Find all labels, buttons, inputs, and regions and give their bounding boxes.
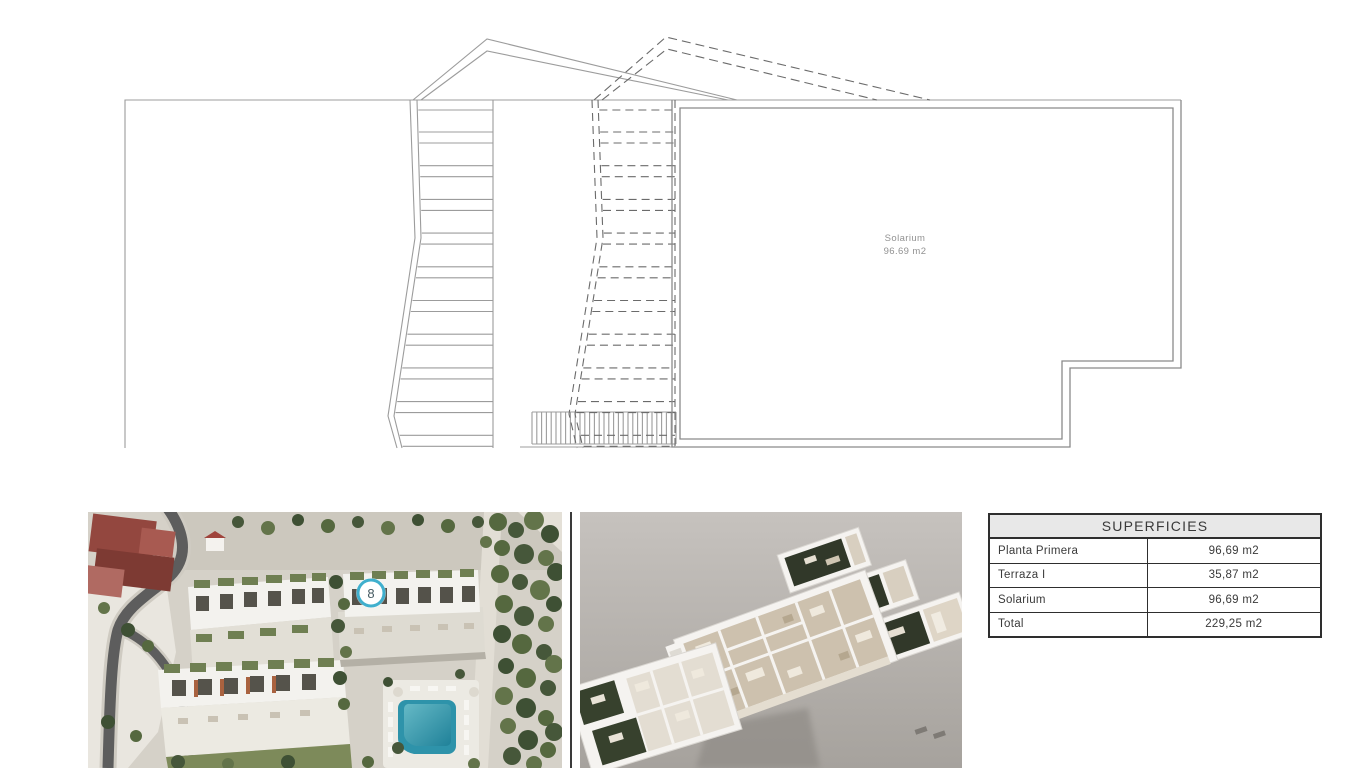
pool-area [383,680,479,768]
roof-outline [413,39,737,100]
plan-sheet-page: Solarium 96.69 m2 [0,0,1366,768]
row-value: 96,69 m2 [1148,588,1321,612]
aerial-photo: 8 [88,512,562,768]
terrace-steps-solid [388,100,493,448]
dashed-roof-outline [594,37,930,100]
stairs-grid [532,412,676,444]
table-row: Solarium 96,69 m2 [990,588,1320,613]
terrace-steps-dashed [569,100,675,448]
table-row: Planta Primera 96,69 m2 [990,539,1320,564]
image-divider [570,512,572,768]
row-value: 96,69 m2 [1148,539,1321,563]
unit-badge: 8 [356,578,386,608]
floorplan-3d-render [580,512,962,768]
floor-plan-drawing: Solarium 96.69 m2 [0,0,1366,470]
plot-boundary [125,100,1181,448]
table-row: Terraza I 35,87 m2 [990,564,1320,589]
row-value: 35,87 m2 [1148,564,1321,588]
solarium-label: Solarium [885,233,926,244]
row-label: Total [990,613,1148,637]
row-label: Planta Primera [990,539,1148,563]
row-label: Solarium [990,588,1148,612]
unit-badge-number: 8 [367,586,374,601]
building-block-b [158,658,352,768]
solarium-area-label: 96.69 m2 [884,246,927,257]
surfaces-table-title: SUPERFICIES [990,515,1320,539]
solarium-outline [672,100,1181,447]
row-label: Terraza I [990,564,1148,588]
surfaces-table: SUPERFICIES Planta Primera 96,69 m2 Terr… [988,513,1322,638]
row-value: 229,25 m2 [1148,613,1321,637]
table-row: Total 229,25 m2 [990,613,1320,637]
